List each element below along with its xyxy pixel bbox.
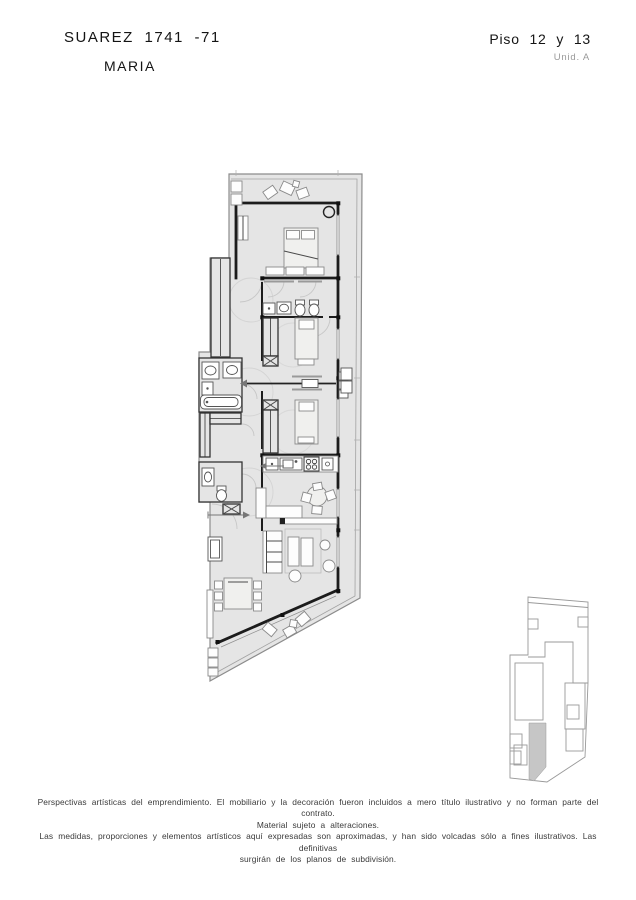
floorplan-drawing [0, 0, 636, 900]
disclaimer-line-2: Material sujeto a alteraciones. [0, 820, 636, 831]
hall-closet [211, 258, 230, 357]
dining-table [224, 578, 252, 609]
plan-sheet: SUAREZ 1741 -71 MARIA Piso 12 y 13 Unid.… [0, 0, 636, 900]
disclaimer-line-1: Perspectivas artísticas del emprendimien… [0, 797, 636, 820]
keyplan [510, 597, 588, 782]
kitchen [260, 456, 338, 472]
main-bathroom [199, 358, 242, 412]
apartment-outline [199, 174, 362, 681]
disclaimer-line-3: Las medidas, proporciones y elementos ar… [0, 831, 636, 854]
disclaimer-line-4: surgirán de los planos de subdivisión. [0, 854, 636, 865]
stove [304, 457, 319, 471]
disclaimer: Perspectivas artísticas del emprendimien… [0, 797, 636, 865]
